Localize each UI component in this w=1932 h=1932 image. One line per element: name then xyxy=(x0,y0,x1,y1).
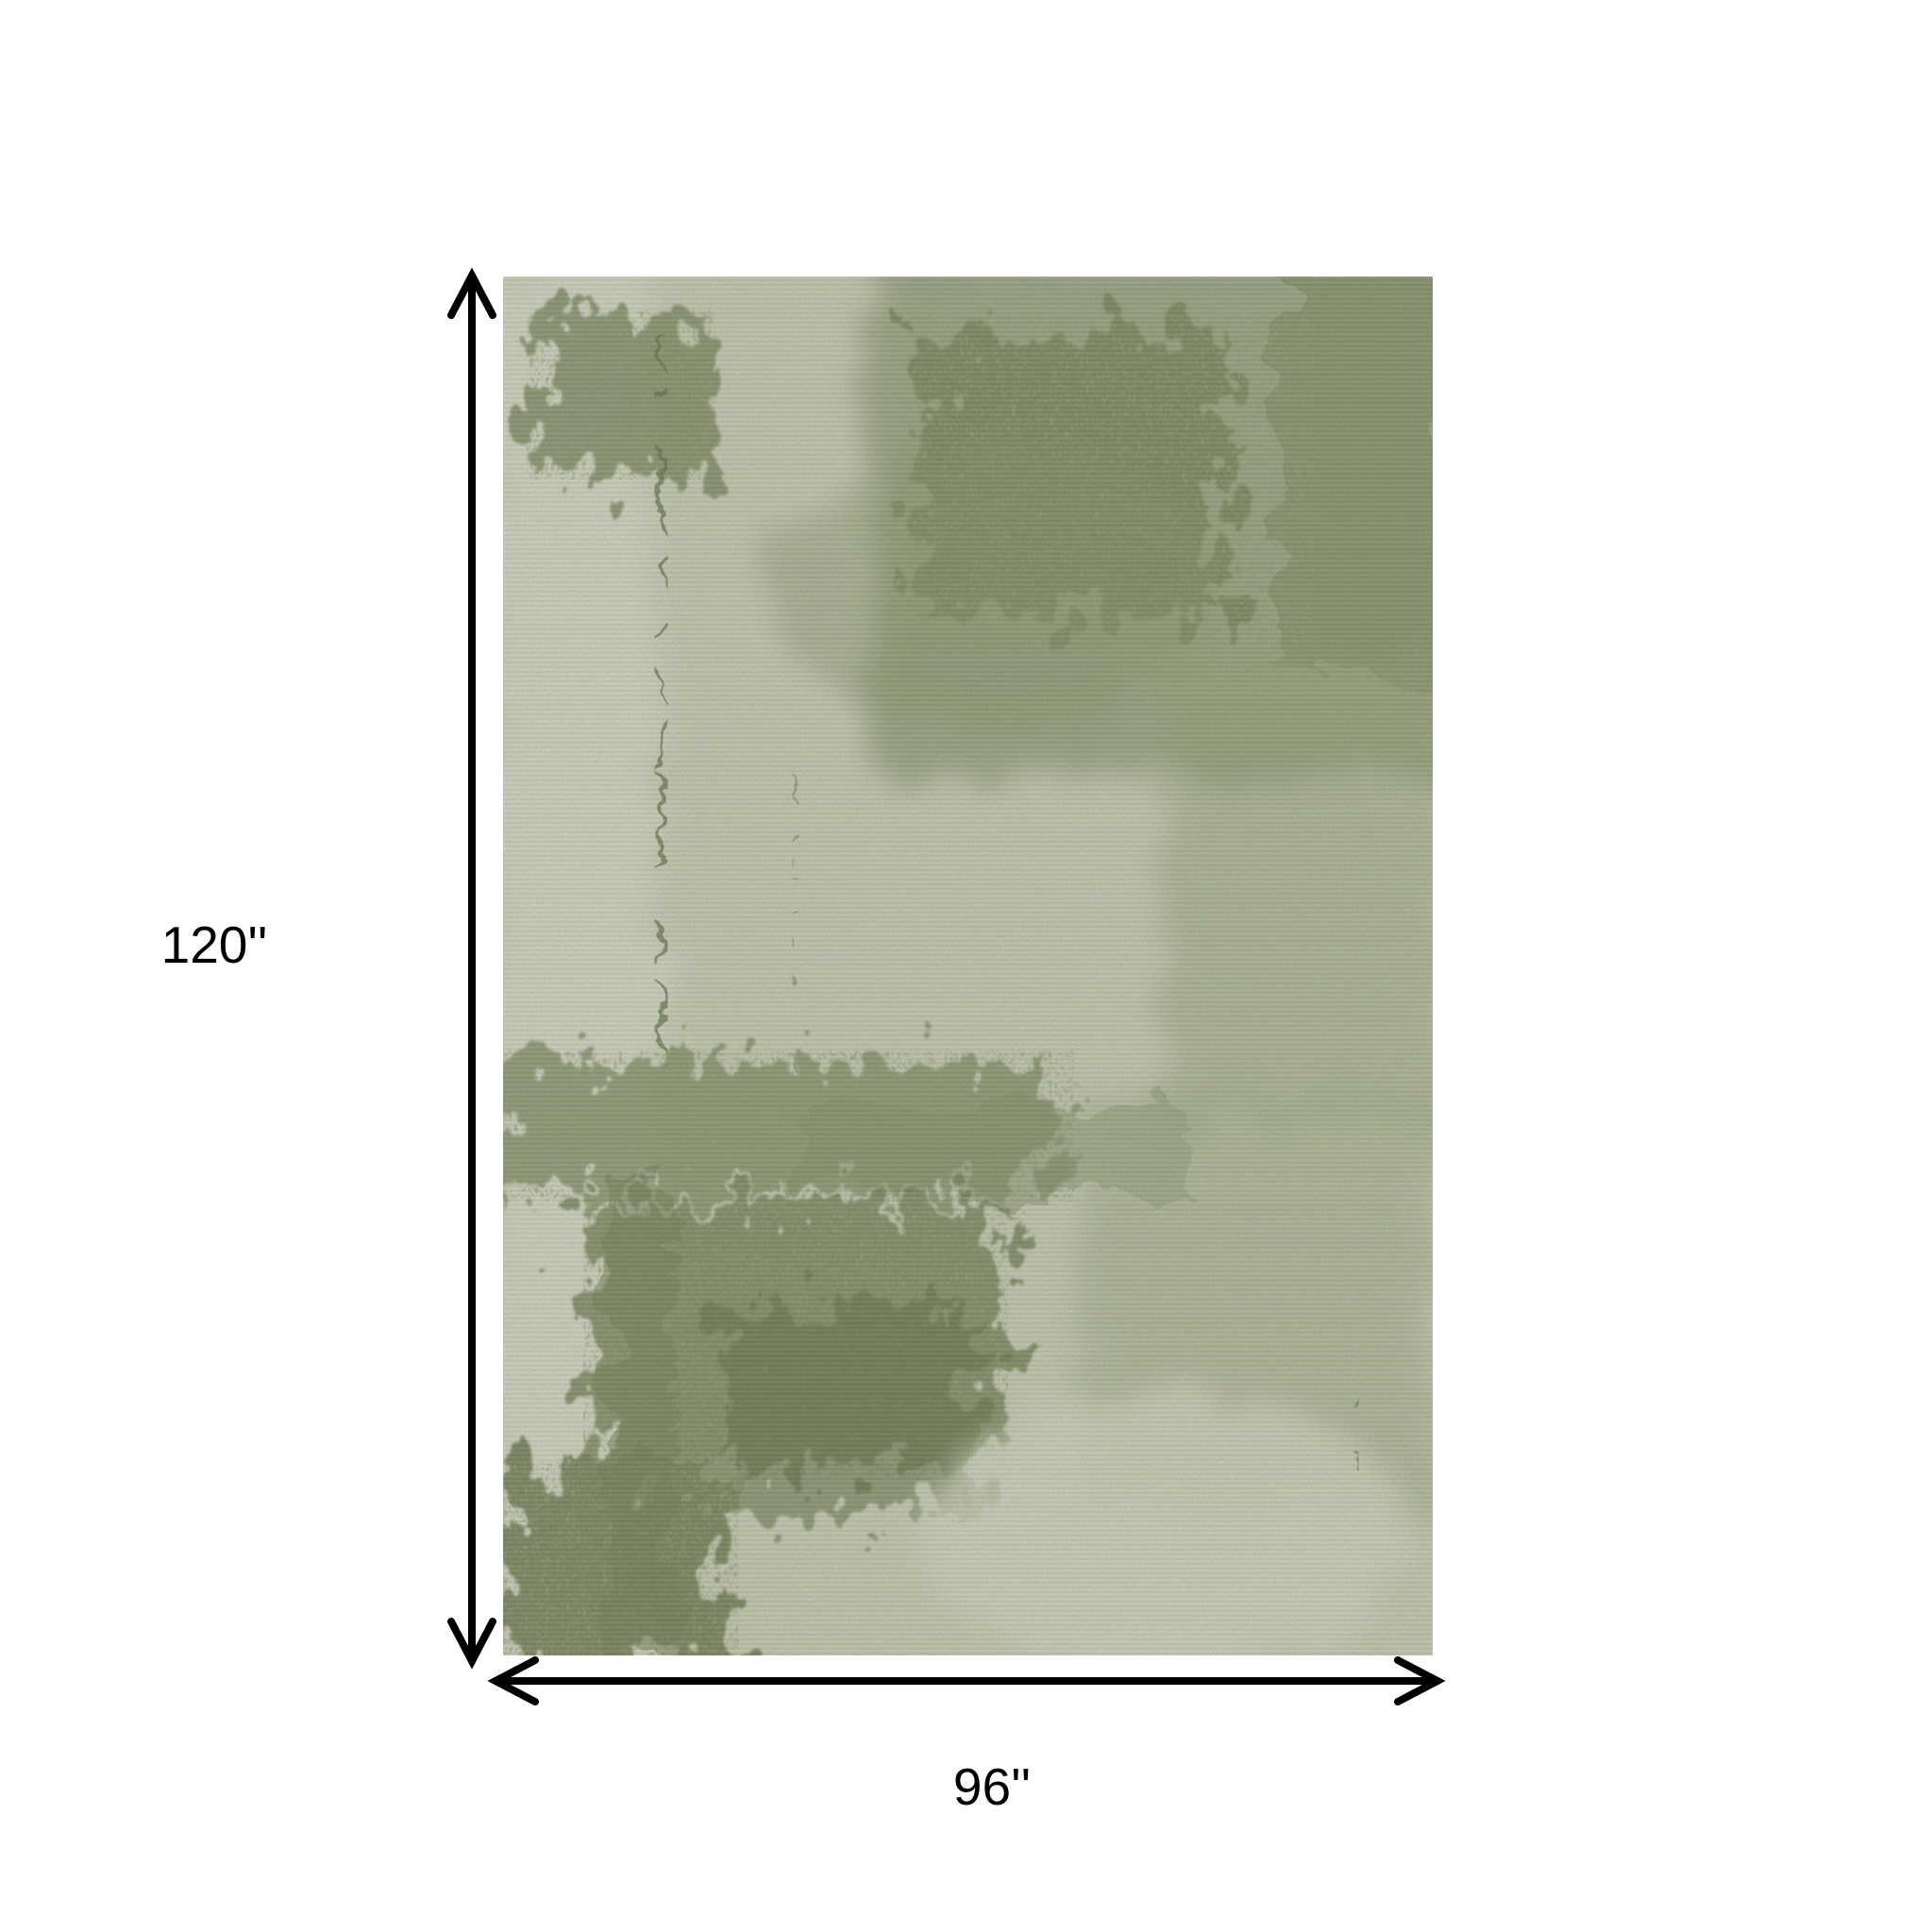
height-dimension-arrow xyxy=(429,262,514,1671)
rug-texture xyxy=(503,277,1433,1655)
rug-dimension-diagram: 120'' 96'' xyxy=(0,0,1932,1932)
rug-image xyxy=(503,277,1433,1655)
width-dimension-arrow xyxy=(483,1638,1450,1723)
height-label: 120'' xyxy=(139,919,290,971)
width-label: 96'' xyxy=(916,1761,1067,1813)
